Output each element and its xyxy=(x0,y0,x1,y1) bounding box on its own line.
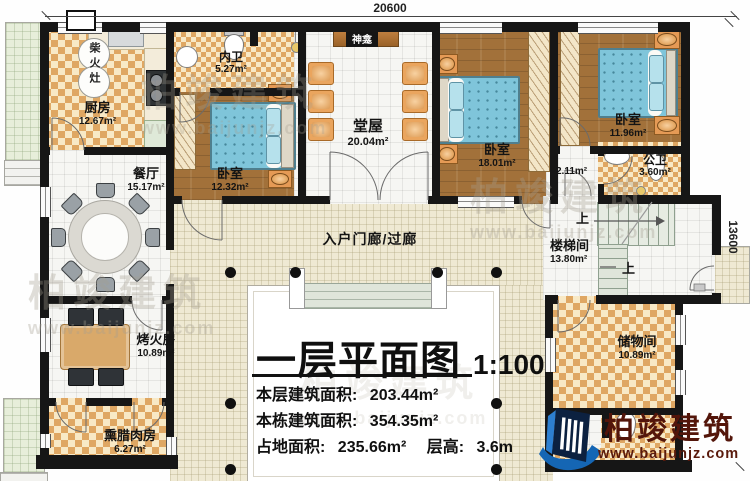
kitchen-label: 厨房 12.67m² xyxy=(50,100,145,128)
dining-label: 餐厅 15.17m² xyxy=(104,166,188,194)
floor-plan: 20600 13600 柴火灶 xyxy=(0,0,750,481)
column-icon xyxy=(491,398,502,409)
bedroom-right-label: 卧室 11.96m² xyxy=(583,112,673,140)
column-icon xyxy=(225,267,236,278)
column-icon xyxy=(491,267,502,278)
stair-arrowhead xyxy=(656,216,665,226)
company-logo: 柏竣建筑 www.baijunjz.com xyxy=(536,402,736,480)
door-arc xyxy=(182,200,222,240)
bedroom-left-label: 卧室 12.32m² xyxy=(185,166,275,194)
stair-up-label: 上 xyxy=(576,208,589,227)
door-arc xyxy=(522,200,550,228)
stair-up-label: 上 xyxy=(622,258,635,277)
hall-label: 堂屋 20.04m² xyxy=(318,118,418,149)
building-area-line: 本栋建筑面积: 354.35m² xyxy=(256,407,438,431)
plan-title: 一层平面图 1:100 xyxy=(256,328,545,386)
dressing-label: 2.11m² xyxy=(556,166,587,177)
storage-label: 储物间 10.89m² xyxy=(590,334,684,362)
door-arc xyxy=(380,152,428,200)
column-icon xyxy=(290,267,301,278)
dimension-top: 20600 xyxy=(350,1,430,15)
door-arc xyxy=(558,300,590,332)
plan-scale: 1:100 xyxy=(473,349,545,381)
title-underline xyxy=(252,374,472,377)
company-name: 柏竣建筑 xyxy=(604,404,736,448)
column-icon xyxy=(491,464,502,475)
dimension-top-line xyxy=(45,16,737,17)
column-icon xyxy=(225,398,236,409)
column-icon xyxy=(225,464,236,475)
logo-icon xyxy=(536,402,602,474)
door-arc xyxy=(132,300,162,330)
door-arc xyxy=(330,152,378,200)
company-website: www.baijunjz.com xyxy=(598,446,739,462)
ensuite-bath-label: 内卫 5.27m² xyxy=(196,50,266,76)
bacon-room-label: 熏腊肉房 6.27m² xyxy=(76,428,184,456)
door-handle xyxy=(694,284,705,291)
entry-porch-label: 入户门廊/过廊 xyxy=(270,229,470,249)
bedroom-middle-label: 卧室 18.01m² xyxy=(452,142,542,170)
floor-area-line: 本层建筑面积: 203.44m² xyxy=(256,381,438,405)
footprint-line: 占地面积: 235.66m² 层高: 3.6m xyxy=(256,433,513,457)
logo-building xyxy=(552,408,590,462)
door-arc xyxy=(180,92,210,122)
column-icon xyxy=(432,267,443,278)
heating-room-label: 烤火房 10.89m² xyxy=(116,332,196,360)
public-bath-label: 公卫 3.60m² xyxy=(626,153,684,179)
dimension-right: 13600 xyxy=(726,209,740,265)
